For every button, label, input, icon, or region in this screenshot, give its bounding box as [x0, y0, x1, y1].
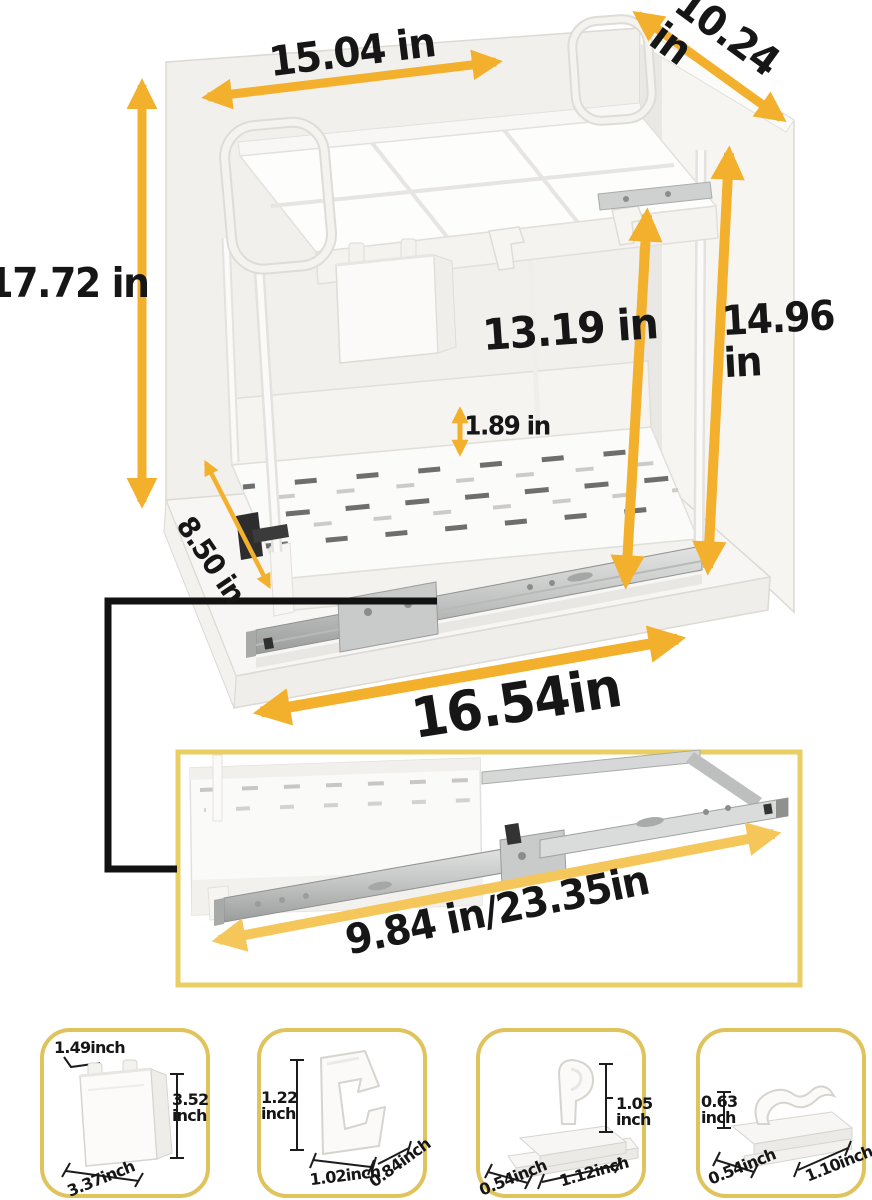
dim-inner-height-label: 13.19 in — [481, 303, 659, 359]
accessory-card-wave-clip: 0.63 inch 0.54inch 1.10inch — [696, 1028, 866, 1198]
accessory-card-square-hook: 1.22 inch 1.02inch 0.84inch — [257, 1028, 427, 1198]
hanging-cup — [336, 239, 456, 363]
curved-hook-height-dim: 1.05 inch — [616, 1096, 652, 1128]
accessory-card-hanging-cup: 1.49inch 3.52 inch 3.37inch — [40, 1028, 210, 1198]
dim-basket-lip-label: 1.89 in — [464, 414, 550, 441]
illustration — [0, 0, 872, 1010]
product-dimension-diagram: 15.04 in 10.24 in 17.72 in 13.19 in 14.9… — [0, 0, 872, 1200]
cup-height-dim: 3.52 inch — [172, 1092, 208, 1124]
detail-view — [178, 750, 800, 985]
square-hook-height-dim: 1.22 inch — [261, 1090, 297, 1122]
dim-side-height-label: 14.96 in — [721, 295, 838, 384]
cup-top-dim: 1.49inch — [54, 1040, 125, 1056]
accessory-card-curved-hook: 1.05 inch 0.54inch 1.12inch — [476, 1028, 646, 1198]
wave-clip-height-dim: 0.63 inch — [701, 1094, 737, 1126]
dim-overall-height-label: 17.72 in — [0, 263, 149, 305]
